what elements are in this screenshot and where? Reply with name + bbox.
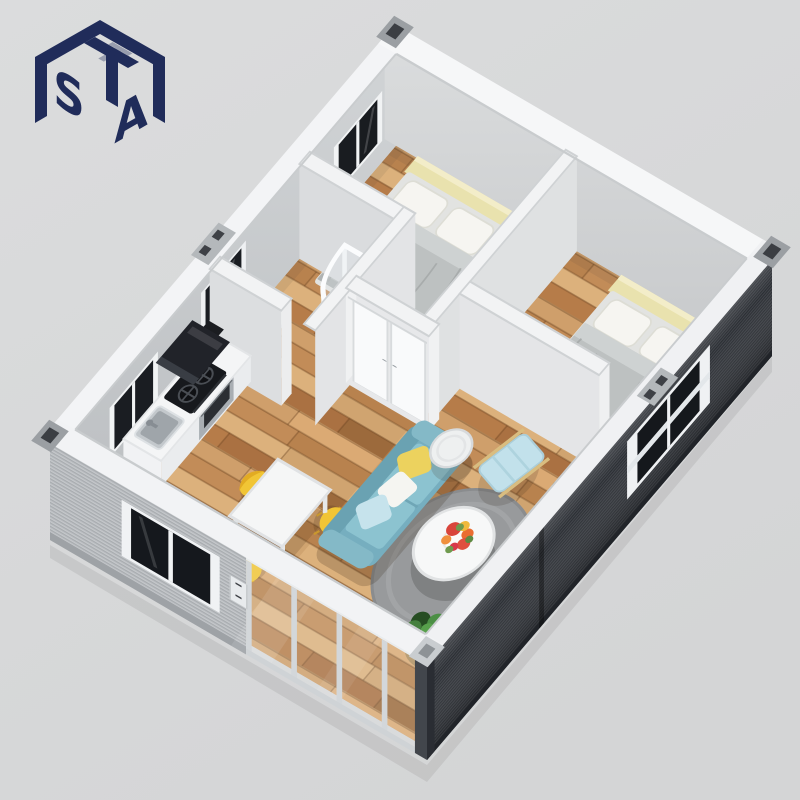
isometric-house-render: S A T: [0, 0, 800, 800]
render-canvas: S A T: [0, 0, 800, 800]
door-mullion: [291, 586, 297, 684]
corner-post: [415, 653, 427, 760]
door-mullion: [382, 639, 388, 737]
wall-bathroom-door-jamb: [281, 299, 291, 406]
container-joint-seam: [539, 519, 544, 629]
logo-beam-right: [153, 57, 165, 123]
door-mullion: [337, 613, 343, 711]
logo-beam-left: [35, 57, 47, 123]
wall-middle-end-right: [429, 324, 439, 431]
